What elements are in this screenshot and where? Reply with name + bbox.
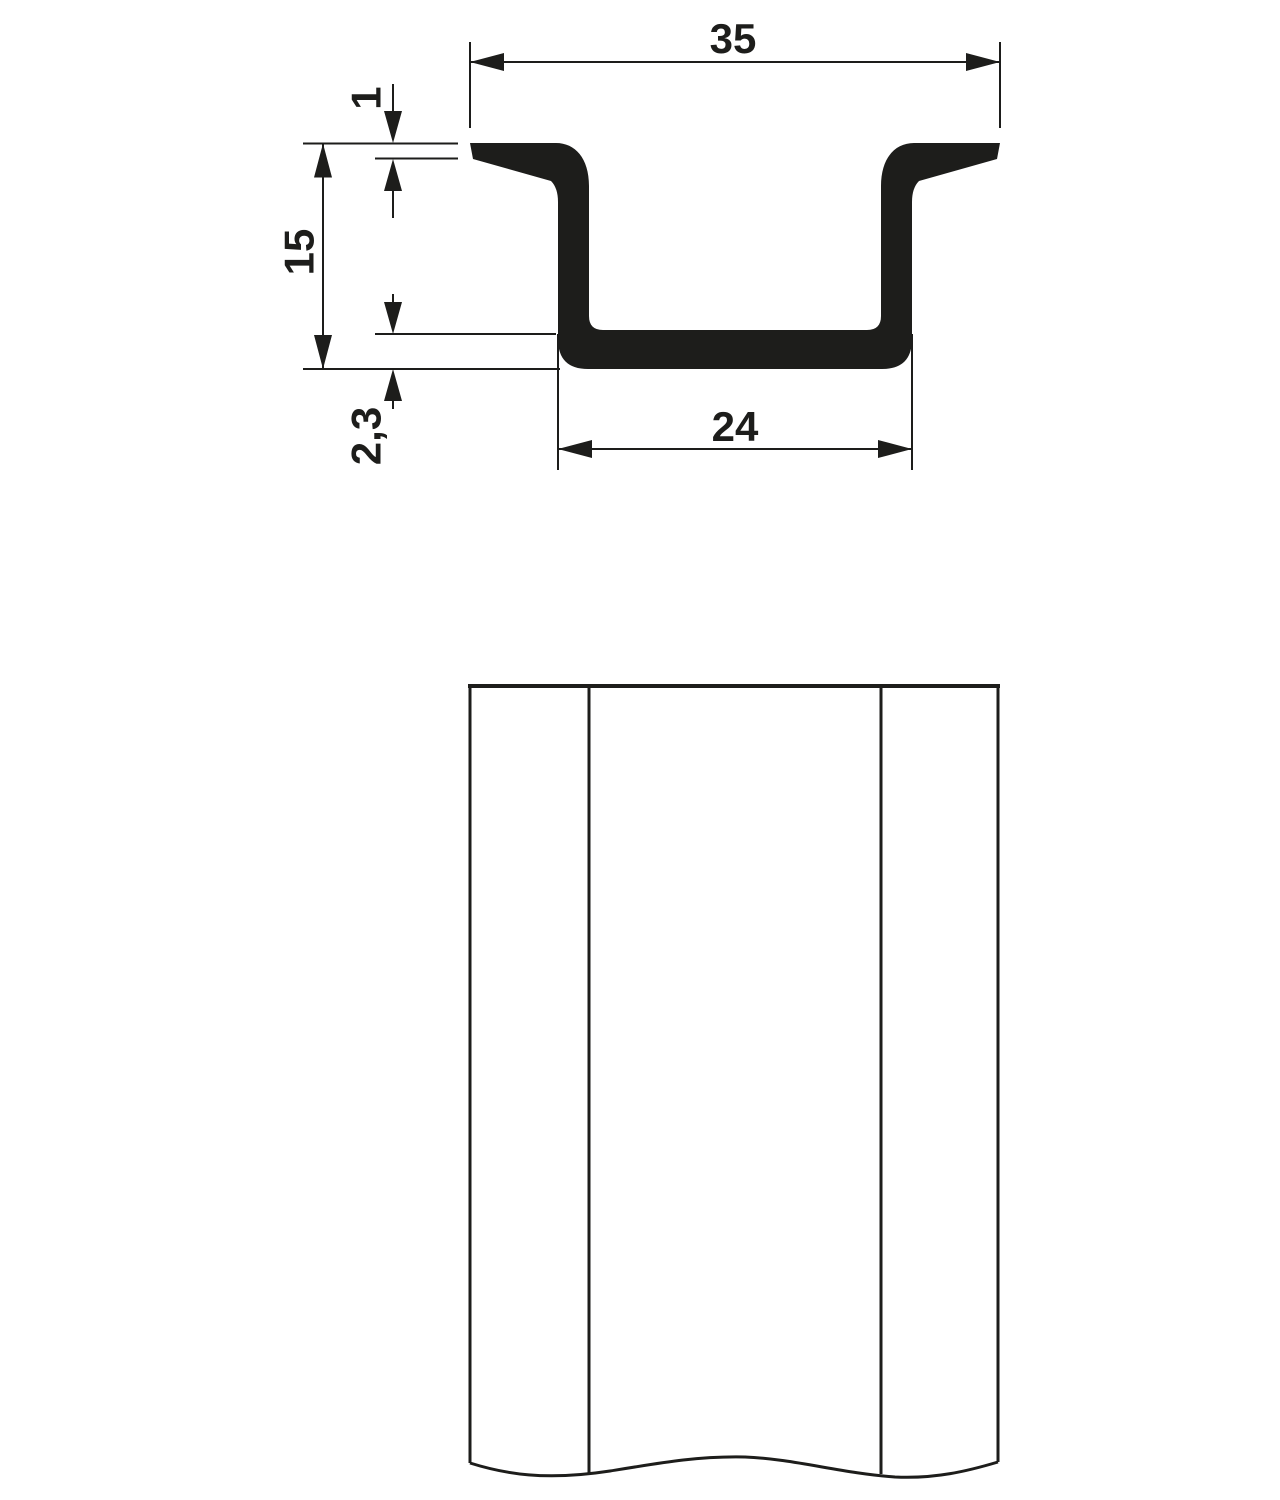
arrowhead-down [384, 302, 402, 334]
dim-base-thickness: 2,3 [343, 294, 403, 465]
dim-overall-width: 35 [470, 15, 1000, 128]
dim-flange-thickness: 1 [343, 84, 403, 218]
front-view [468, 686, 1000, 1477]
arrowhead-right [878, 440, 912, 458]
front-view-break-line [470, 1457, 998, 1477]
dim-overall-height: 15 [276, 144, 333, 370]
arrowhead-up [384, 369, 402, 401]
arrowhead-down [384, 111, 402, 143]
arrowhead-left [470, 53, 504, 71]
dim-label-base-thickness: 2,3 [343, 407, 390, 465]
arrowhead-up [314, 144, 332, 178]
page: 35 1 15 2,3 [0, 0, 1280, 1500]
dim-label-flange-thickness: 1 [343, 86, 390, 109]
dim-label-overall-height: 15 [276, 229, 323, 276]
din-rail-dimensional-drawing: 35 1 15 2,3 [0, 0, 1280, 1500]
arrowhead-left [558, 440, 592, 458]
rail-profile-cross-section [470, 143, 1000, 369]
arrowhead-down [314, 335, 332, 369]
arrowhead-up [384, 159, 402, 191]
cross-section-view: 35 1 15 2,3 [276, 15, 1001, 470]
arrowhead-right [966, 53, 1000, 71]
dim-label-inner-width: 24 [712, 403, 759, 450]
dim-label-overall-width: 35 [710, 15, 757, 62]
